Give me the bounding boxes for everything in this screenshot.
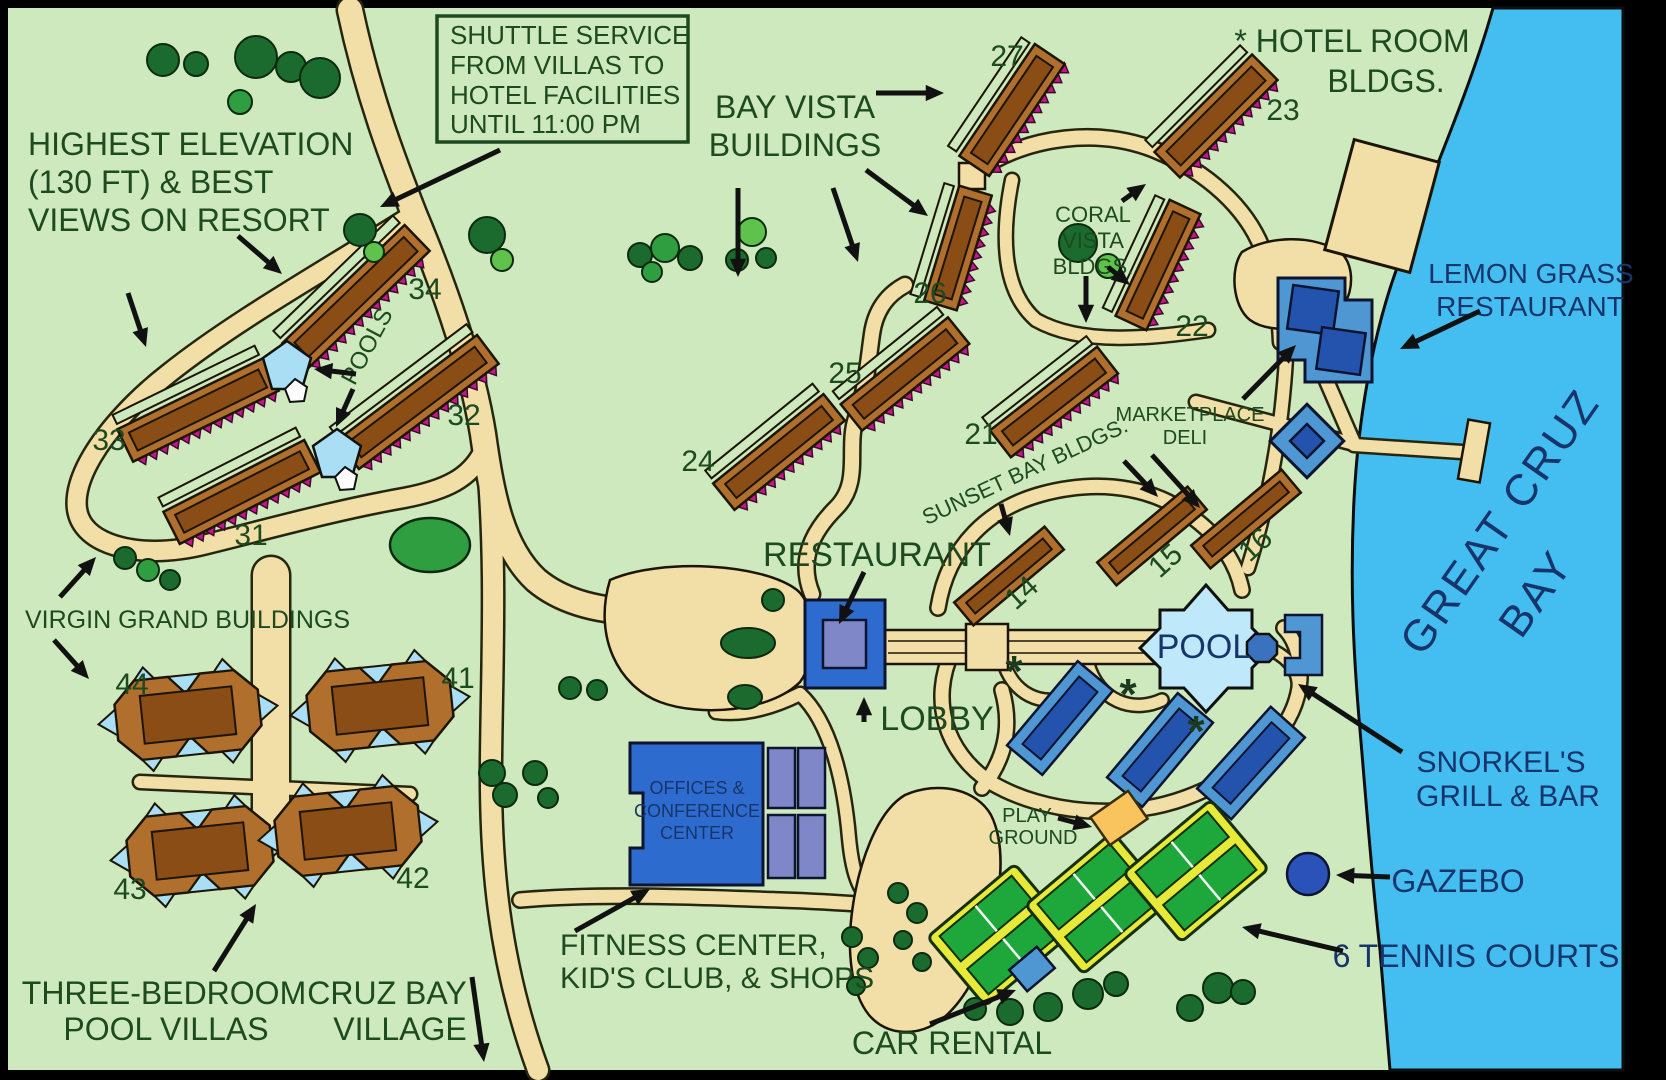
tree [587,680,607,700]
tree [738,218,766,246]
green-blob [390,518,470,572]
building-number-42: 42 [396,862,429,895]
building-number-41: 41 [441,662,474,695]
building-number-22: 22 [1175,310,1208,343]
tree [364,242,384,262]
tree [651,234,679,262]
shops-building-1 [768,748,795,808]
label-lobby: LOBBY [880,700,993,738]
tree [137,559,159,581]
tree [228,90,252,114]
tree [469,217,505,253]
plaza-planter-2 [762,589,784,611]
building-number-26: 26 [913,277,946,310]
label-shuttle-l2: FROM VILLAS TO [450,50,664,80]
tree [479,760,505,786]
tree [894,931,912,949]
label-virgin-grand: VIRGIN GRAND BUILDINGS [25,606,350,634]
label-fitness-l1: FITNESS CENTER, [560,929,827,962]
shops-building-4 [798,815,825,878]
label-restaurant: RESTAURANT [763,536,991,574]
tree [559,677,581,699]
shops-building-3 [768,815,795,878]
label-tennis: 6 TENNIS COURTS [1333,938,1620,974]
label-fitness-l2: KID'S CLUB, & SHOPS [560,962,874,995]
label-snorkel-l1: SNORKEL'S [1416,746,1585,779]
label-elevation-l2: (130 FT) & BEST [28,164,273,200]
tree [842,927,862,947]
building-number-33: 33 [92,424,125,457]
building-number-34: 34 [408,273,441,306]
plaza-planter-3 [728,685,762,709]
label-offices-l3: CENTER [660,823,734,843]
pool-spa [1247,634,1277,662]
label-offices-l1: OFFICES & [649,778,744,798]
lobby-pool-boardwalk [885,630,1168,664]
building-number-31: 31 [234,519,267,552]
label-cruz-bay-l2: VILLAGE [333,1011,466,1047]
label-gazebo: GAZEBO [1391,863,1524,899]
label-lemon-l1: LEMON GRASS [1428,258,1633,289]
resort-map: SHUTTLE SERVICE FROM VILLAS TO HOTEL FAC… [0,0,1666,1080]
tree [1203,973,1233,1003]
label-hotel-room-l1: * HOTEL ROOM [1234,23,1469,59]
label-shuttle-l3: HOTEL FACILITIES [450,80,680,110]
tree [997,999,1023,1025]
gazebo [1287,853,1329,895]
tree [523,761,547,785]
tree [147,44,179,76]
tree [913,953,931,971]
label-snorkel-l2: GRILL & BAR [1416,780,1600,813]
label-elevation-l1: HIGHEST ELEVATION [28,126,353,162]
pier-stem [1354,445,1462,452]
label-car-rental: CAR RENTAL [852,1025,1052,1061]
building-number-24: 24 [681,445,714,478]
tree [678,246,702,270]
building-number-23: 23 [1266,94,1299,127]
label-three-br-l1: THREE-BEDROOM [22,975,306,1011]
label-marketplace-l1: MARKETPLACE [1116,404,1265,426]
label-hotel-room-l2: BLDGS. [1327,63,1444,99]
tree [907,903,927,923]
label-elevation-l3: VIEWS ON RESORT [28,202,330,238]
building-number-21: 21 [964,418,997,451]
tree [888,883,908,903]
tree [1034,993,1062,1021]
label-play-l1: PLAY [1002,805,1052,827]
label-offices-l2: CONFERENCE [634,801,760,821]
shops-building-2 [798,748,825,808]
label-marketplace-l2: DELI [1163,427,1207,449]
label-coral-l1: CORAL [1055,202,1131,227]
tree [756,248,776,268]
label-coral-l2: VISTA [1062,228,1124,253]
label-play-l2: GROUND [989,827,1078,849]
tree [114,547,136,569]
tree [184,52,208,76]
tree [1104,972,1128,996]
tree [1073,979,1103,1009]
hotel-asterisk-2: * [1119,670,1137,719]
building-number-32: 32 [447,399,480,432]
boardwalk-junction [966,624,1008,670]
tree [300,58,340,98]
tree [160,570,180,590]
hotel-asterisk-1: * [1005,647,1023,696]
tree [235,36,277,78]
tree [1177,995,1203,1021]
label-cruz-bay-l1: CRUZ BAY [307,975,466,1011]
hotel-asterisk-3: * [1187,707,1205,756]
tree [642,262,662,282]
label-shuttle-l1: SHUTTLE SERVICE [450,20,689,50]
tree [491,249,513,271]
tree [493,783,517,807]
label-bay-vista-l2: BUILDINGS [709,127,881,163]
restaurant-plaza [605,566,813,710]
map-canvas: SHUTTLE SERVICE FROM VILLAS TO HOTEL FAC… [0,0,1666,1080]
tree [1231,980,1255,1004]
plaza-planter-1 [721,628,775,658]
building-number-44: 44 [115,668,148,701]
building-number-43: 43 [113,873,146,906]
tree [344,214,376,246]
label-three-br-l2: POOL VILLAS [63,1011,268,1047]
label-shuttle-l4: UNTIL 11:00 PM [450,109,641,139]
label-pool: POOL [1157,628,1251,666]
label-bay-vista-l1: BAY VISTA [715,89,876,125]
building-number-25: 25 [828,357,861,390]
tree [538,788,558,808]
building-number-27: 27 [990,40,1023,73]
